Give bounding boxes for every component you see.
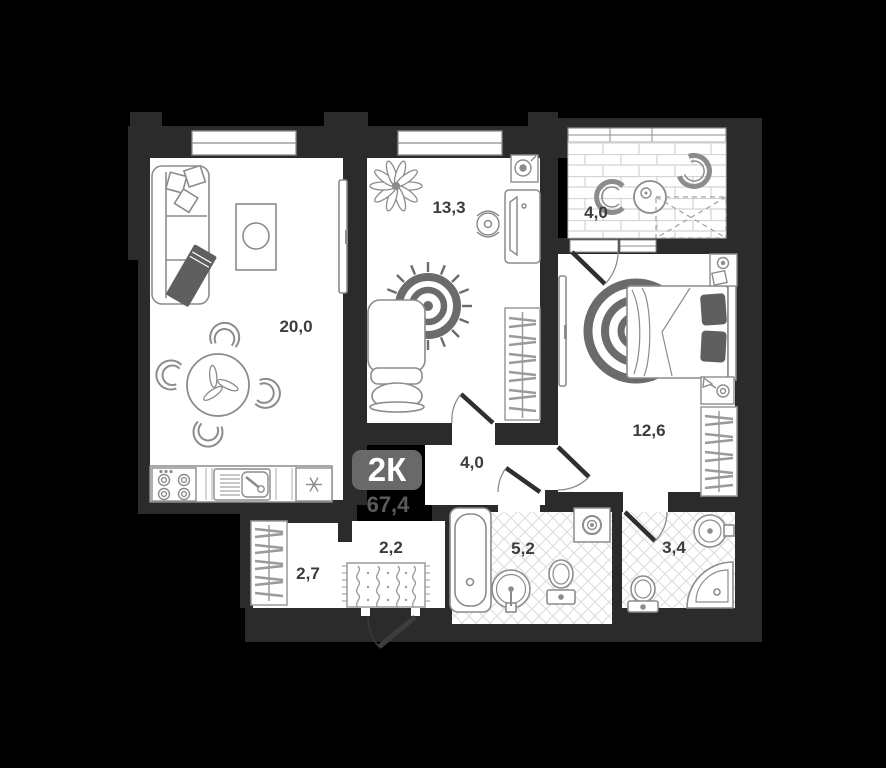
- wc-toilet-icon: [628, 576, 658, 612]
- wc-area-label: 3,4: [662, 538, 686, 557]
- bedroom1-area-label: 12,6: [632, 421, 665, 440]
- wc-door-opening: [623, 492, 668, 512]
- entry-hall-area-label: 2,2: [379, 538, 403, 557]
- total-area-label: 67,4: [367, 492, 411, 517]
- living-area-label: 20,0: [279, 317, 312, 336]
- washing-machine-icon: [574, 508, 610, 542]
- bedroom2-area-label: 13,3: [432, 198, 465, 217]
- bedroom1-door-opening: [545, 445, 558, 490]
- bathroom-door-opening: [498, 492, 540, 512]
- wardrobe-bedroom2-icon: [505, 308, 540, 420]
- bathtub-icon: [450, 508, 491, 612]
- entry-rug-icon: [342, 563, 430, 607]
- pillow-icon: [700, 293, 727, 326]
- sofa-icon: [152, 166, 217, 308]
- flower-stand-icon: [701, 377, 734, 404]
- floorplan-svg: 20,0 13,3 4,0 12,6 4,0 2,2 2,7 5,2 3,4 2…: [0, 0, 886, 768]
- wardrobe-room-area-label: 2,7: [296, 564, 320, 583]
- balcony-door-opening: [570, 240, 618, 252]
- coffee-table-icon: [236, 204, 276, 270]
- kitchen-sink-icon: [214, 469, 270, 500]
- fridge-icon: [296, 468, 332, 501]
- floorplan-canvas: 20,0 13,3 4,0 12,6 4,0 2,2 2,7 5,2 3,4 2…: [0, 0, 886, 768]
- stove-icon: [152, 468, 196, 501]
- bathroom-toilet-icon: [547, 560, 575, 604]
- bathroom-area-label: 5,2: [511, 539, 535, 558]
- wardrobe-room-hangers-icon: [251, 521, 287, 605]
- apartment-type-text: 2К: [368, 451, 407, 488]
- tv-bedroom-icon: [559, 276, 567, 386]
- wall-unit-icon: [511, 155, 538, 182]
- wardrobe-bedroom1-icon: [701, 407, 737, 496]
- armchair-bed-icon: [368, 300, 425, 412]
- tv-living-icon: [339, 180, 348, 293]
- bedroom2-door-opening: [452, 423, 495, 445]
- desk-icon: [505, 190, 540, 263]
- bed-icon: [627, 284, 736, 380]
- hallway-area-label: 4,0: [460, 453, 484, 472]
- balcony-area-label: 4,0: [584, 203, 608, 222]
- nightstand-icon: [710, 254, 737, 286]
- pillow-icon: [700, 330, 727, 362]
- apartment-type-badge: 2К: [352, 450, 422, 490]
